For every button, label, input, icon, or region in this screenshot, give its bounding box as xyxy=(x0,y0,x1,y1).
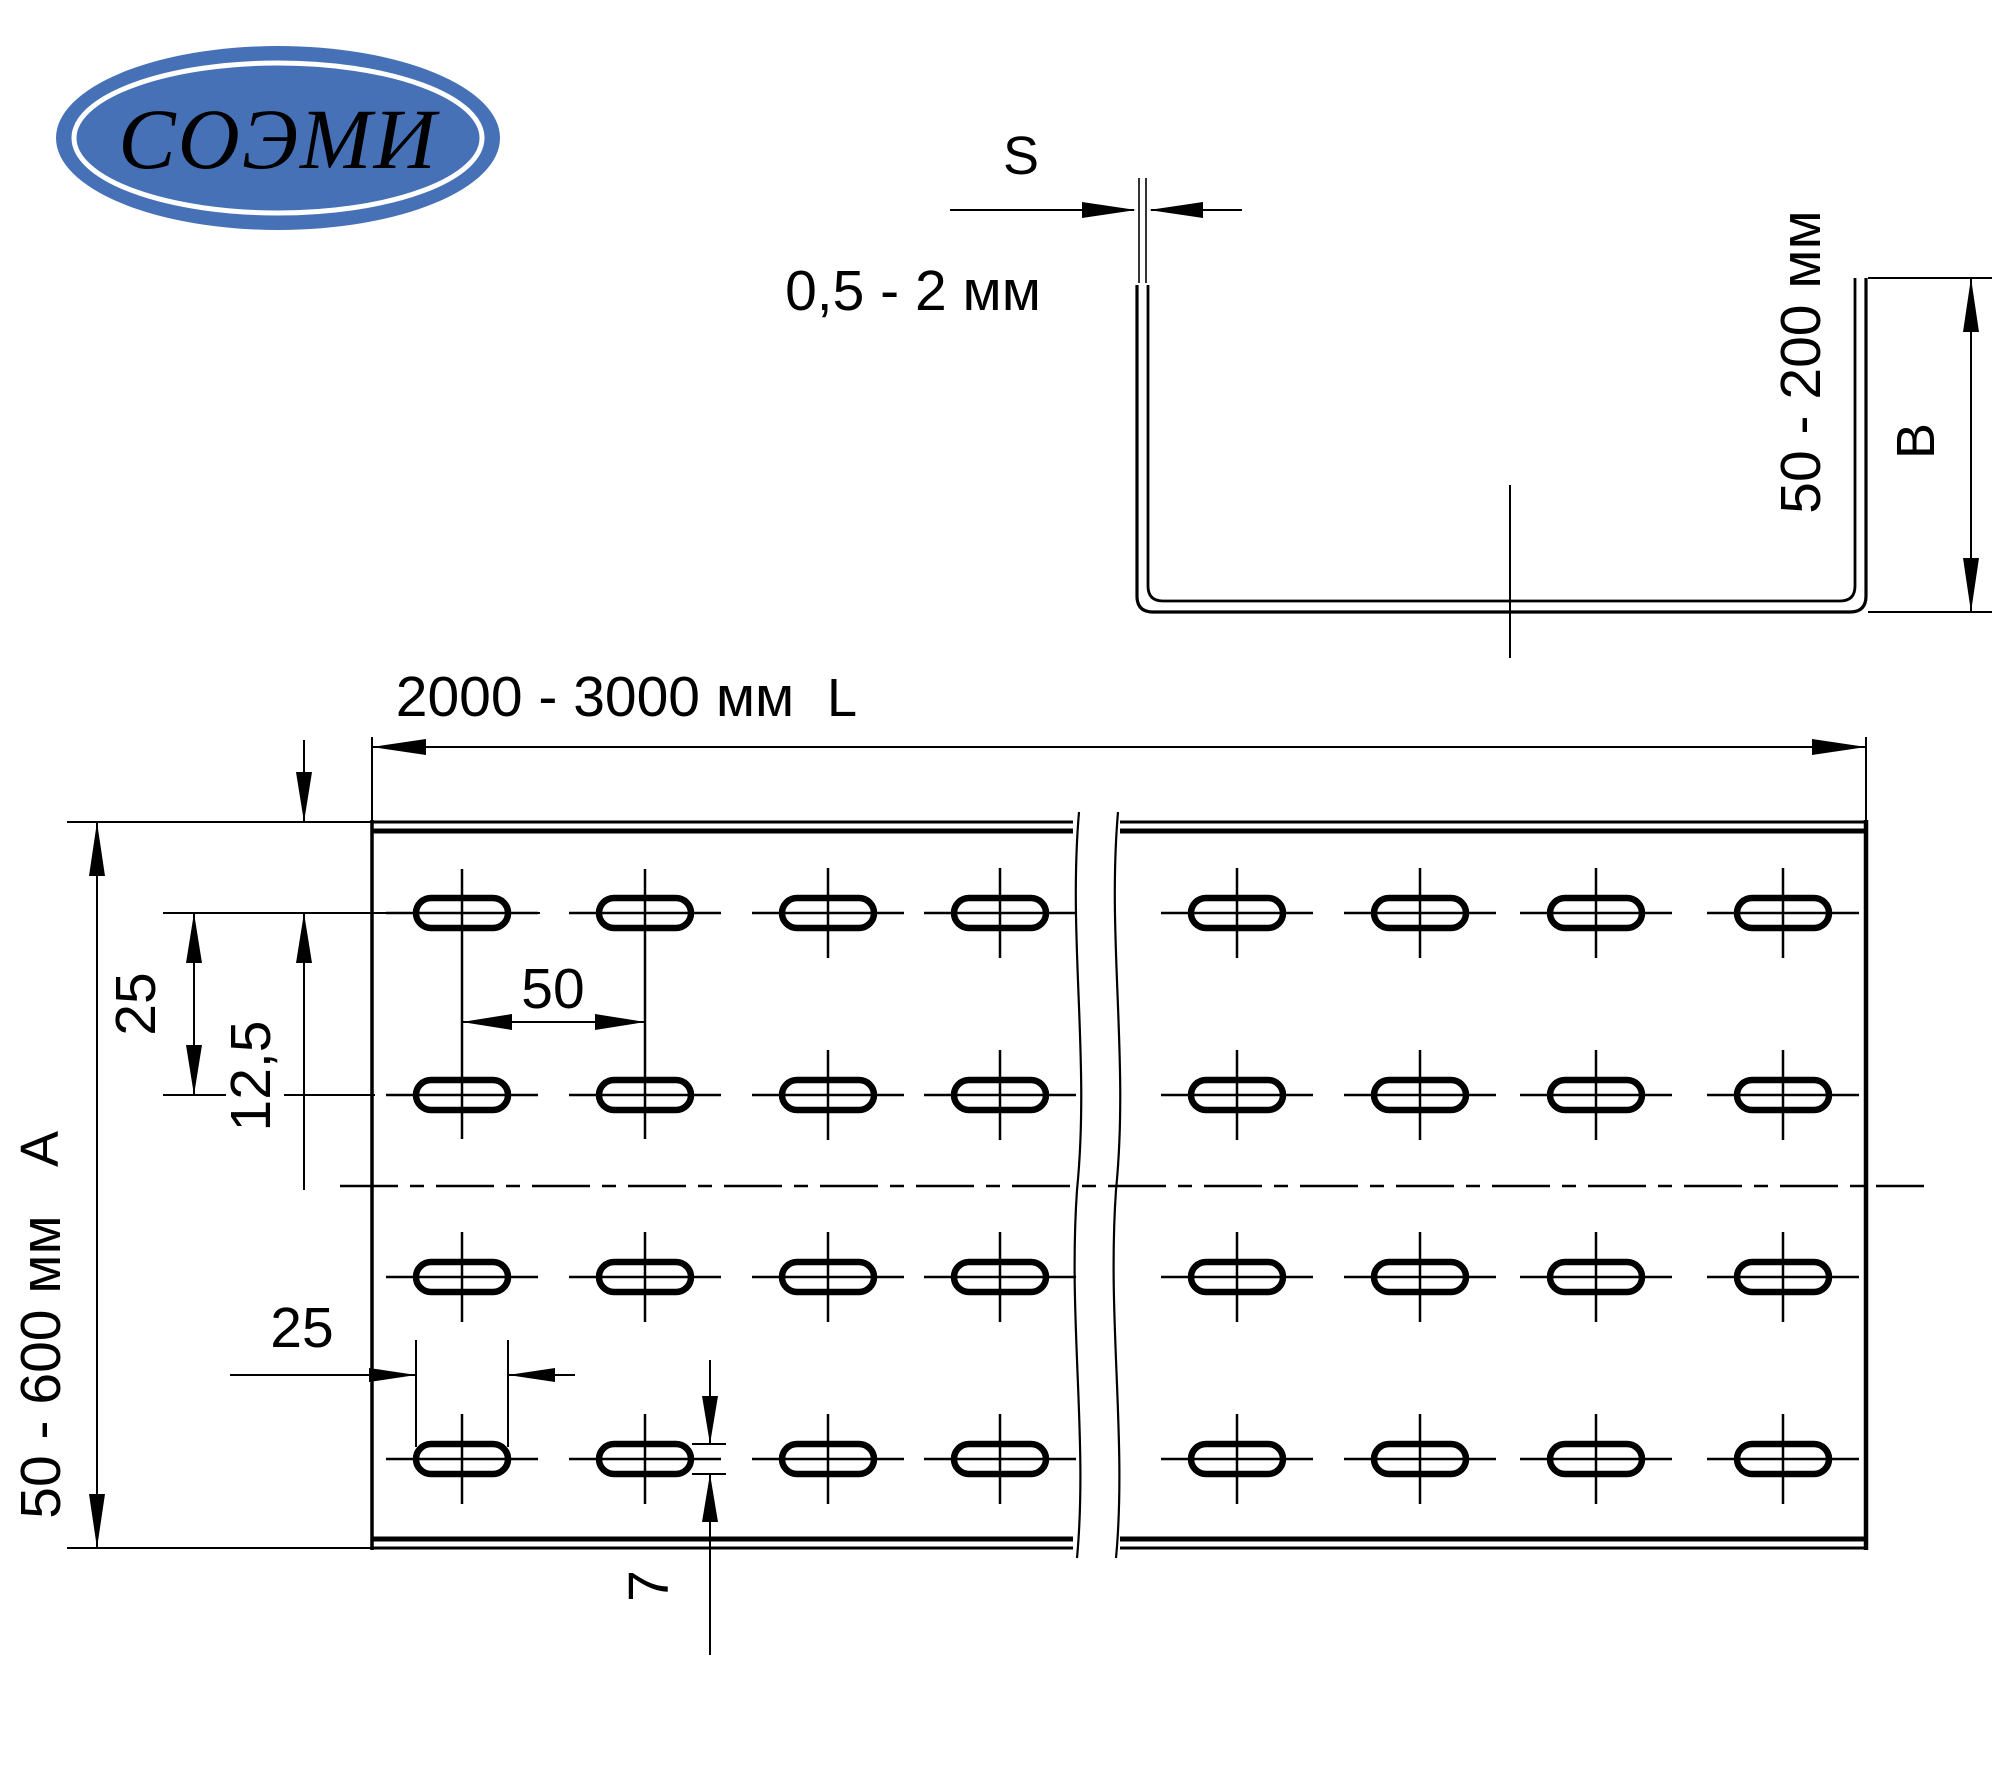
slot xyxy=(1707,868,1859,958)
logo-text: СОЭМИ xyxy=(118,91,440,187)
length-symbol: L xyxy=(827,668,857,728)
channel-outer-contour xyxy=(1137,278,1866,612)
height-symbol: B xyxy=(1886,423,1946,459)
technical-drawing: СОЭМИ S 0,5 - 2 мм 50 - 200 мм B xyxy=(0,0,2000,1771)
dim-row-spacing: 25 xyxy=(104,913,540,1095)
slot xyxy=(924,868,1076,958)
dim-length: 2000 - 3000 мм L xyxy=(372,665,1866,822)
slot xyxy=(752,1414,904,1504)
slot xyxy=(1344,1050,1496,1140)
arrow-up-icon xyxy=(702,1474,718,1522)
arrow-left-icon xyxy=(508,1368,555,1382)
slot xyxy=(752,1050,904,1140)
slot xyxy=(924,1232,1076,1322)
dim-slot-length: 25 xyxy=(230,1296,575,1447)
dim-width: 50 - 600 мм A xyxy=(9,822,372,1548)
height-range: 50 - 200 мм xyxy=(1769,210,1833,513)
slot xyxy=(752,868,904,958)
dim-thickness: S 0,5 - 2 мм xyxy=(785,126,1242,323)
drawing-sheet: СОЭМИ S 0,5 - 2 мм 50 - 200 мм B xyxy=(0,0,2000,1771)
arrow-left-icon xyxy=(1149,202,1203,218)
dim-edge-offset: 12,5 xyxy=(219,740,312,1190)
arrow-right-icon xyxy=(369,1368,416,1382)
arrow-down-icon xyxy=(89,1494,105,1548)
plan-view: 2000 - 3000 мм L 50 - 600 мм A 25 xyxy=(9,665,1924,1655)
arrow-left-icon xyxy=(372,739,426,755)
logo: СОЭМИ xyxy=(56,46,500,230)
slot xyxy=(386,1232,538,1322)
arrow-up-icon xyxy=(296,913,312,963)
thickness-range: 0,5 - 2 мм xyxy=(785,259,1041,323)
slot xyxy=(752,1232,904,1322)
slot xyxy=(1344,868,1496,958)
length-range: 2000 - 3000 мм xyxy=(396,665,794,729)
arrow-up-icon xyxy=(1963,278,1979,332)
slot xyxy=(1344,1414,1496,1504)
slot xyxy=(1520,868,1672,958)
slot xyxy=(1161,868,1313,958)
slot xyxy=(1520,1232,1672,1322)
arrow-up-icon xyxy=(89,822,105,876)
width-range: 50 - 600 мм xyxy=(9,1215,73,1518)
slot xyxy=(1161,1232,1313,1322)
dim-pitch: 50 xyxy=(462,957,645,1030)
row-spacing-value: 25 xyxy=(104,972,168,1035)
slot xyxy=(924,1050,1076,1140)
slot xyxy=(569,898,721,928)
arrow-right-icon xyxy=(1812,739,1866,755)
slot xyxy=(924,1414,1076,1504)
edge-offset-value: 12,5 xyxy=(219,1021,283,1132)
slot-length-value: 25 xyxy=(270,1296,333,1360)
slot xyxy=(1161,1414,1313,1504)
slot xyxy=(386,1414,538,1504)
arrow-down-icon xyxy=(702,1396,718,1444)
slot xyxy=(1520,1050,1672,1140)
slot-width-value: 7 xyxy=(617,1570,681,1602)
slot xyxy=(1707,1414,1859,1504)
dim-slot-width: 7 xyxy=(617,1360,726,1655)
arrow-right-icon xyxy=(1082,202,1136,218)
arrow-down-icon xyxy=(296,772,312,822)
slot xyxy=(569,1080,721,1110)
arrow-left-icon xyxy=(462,1014,512,1030)
width-symbol: A xyxy=(10,1131,70,1167)
arrow-right-icon xyxy=(595,1014,645,1030)
pitch-value: 50 xyxy=(521,957,584,1021)
arrow-down-icon xyxy=(186,1045,202,1095)
channel-inner-contour xyxy=(1148,278,1855,601)
slot xyxy=(1161,1050,1313,1140)
slot xyxy=(1344,1232,1496,1322)
thickness-symbol: S xyxy=(1003,126,1039,186)
arrow-down-icon xyxy=(1963,558,1979,612)
profile-view: S 0,5 - 2 мм 50 - 200 мм B xyxy=(785,126,1992,658)
slot xyxy=(569,1232,721,1322)
dim-height: 50 - 200 мм B xyxy=(1769,210,1992,612)
slot xyxy=(386,1080,538,1110)
slot xyxy=(1707,1232,1859,1322)
slot xyxy=(569,1414,721,1504)
slot xyxy=(1520,1414,1672,1504)
arrow-up-icon xyxy=(186,913,202,963)
slot xyxy=(1707,1050,1859,1140)
